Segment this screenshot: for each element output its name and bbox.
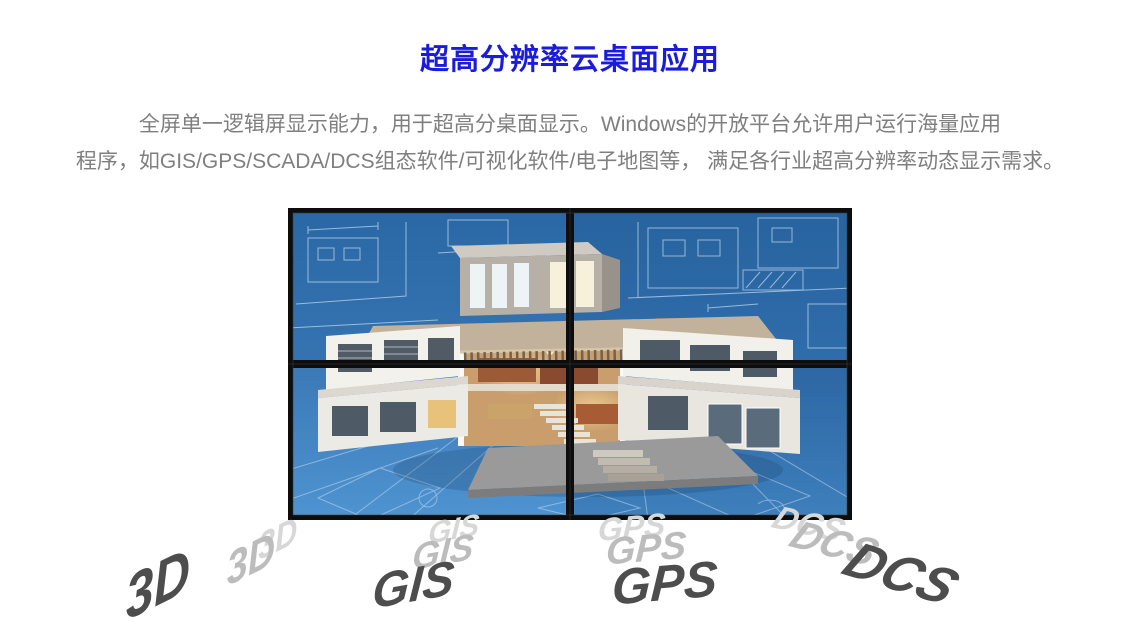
fly-label-3d: 3D — [125, 538, 191, 631]
video-wall-graphic — [288, 208, 852, 520]
description-line-1: 全屏单一逻辑屏显示能力，用于超高分桌面显示。Windows的开放平台允许用户运行… — [0, 106, 1140, 143]
description-paragraph: 全屏单一逻辑屏显示能力，用于超高分桌面显示。Windows的开放平台允许用户运行… — [0, 106, 1140, 180]
video-wall-image — [288, 208, 852, 520]
fly-label-gis: GIS — [371, 554, 456, 618]
slide: 超高分辨率云桌面应用 全屏单一逻辑屏显示能力，用于超高分桌面显示。Windows… — [0, 0, 1140, 635]
description-line-2: 程序，如GIS/GPS/SCADA/DCS组态软件/可视化软件/电子地图等， 满… — [0, 143, 1140, 180]
page-title: 超高分辨率云桌面应用 — [0, 36, 1140, 78]
fly-label-gps: GPS — [611, 553, 719, 613]
fly-label-3d-echo-1: 3D — [226, 524, 276, 593]
fly-label-dcs: DCS — [835, 535, 968, 613]
